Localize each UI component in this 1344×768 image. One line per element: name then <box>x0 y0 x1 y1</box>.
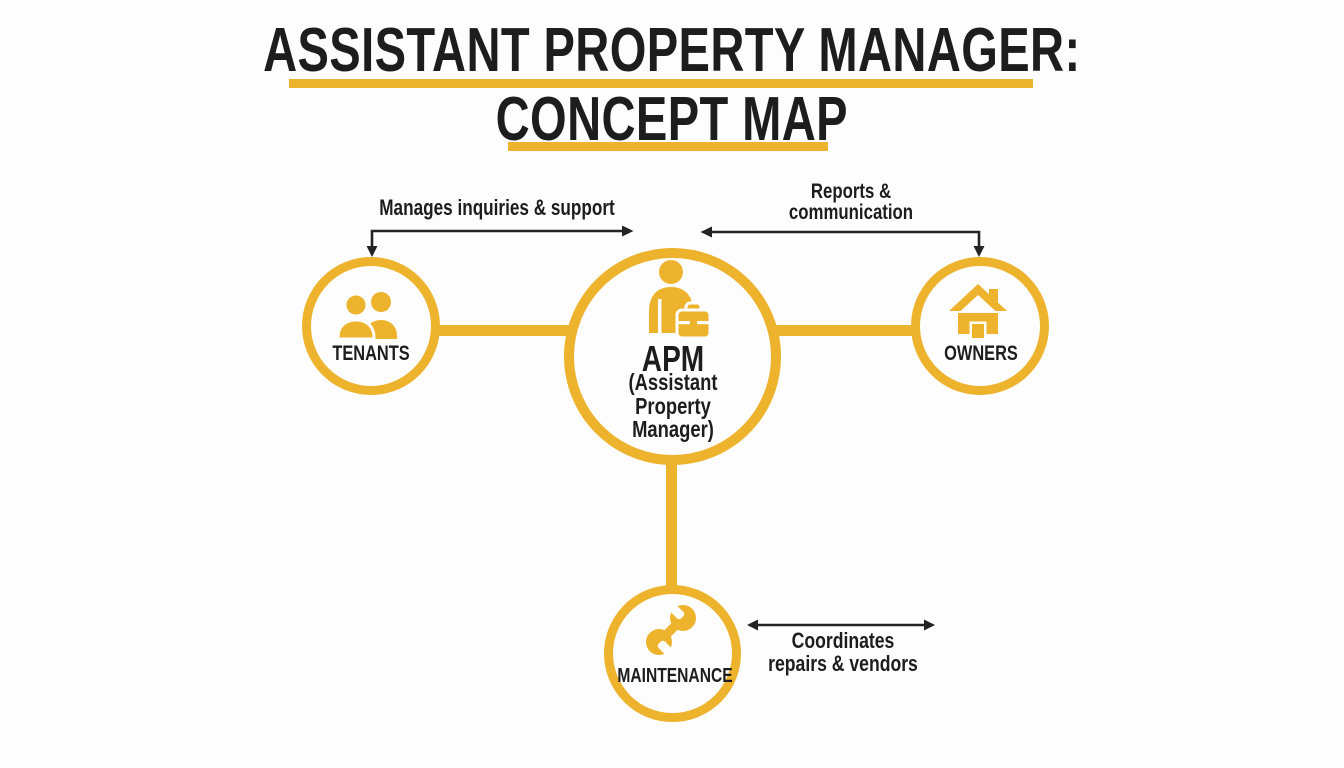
apm-sublabel-line: Manager) <box>632 418 714 442</box>
node-label-maintenance: MAINTENANCE <box>617 666 732 688</box>
connector-maintenance-apm <box>666 445 677 600</box>
arrow-apm-owners <box>701 227 985 258</box>
edge-label-line: Coordinates <box>792 629 895 652</box>
concept-map-canvas: ASSISTANT PROPERTY MANAGER: CONCEPT MAP <box>0 0 1344 768</box>
arrow-tenants-apm <box>367 226 634 258</box>
edge-label-reports-communication: Reports & communication <box>789 181 913 223</box>
wrench-icon <box>637 596 705 664</box>
page-title-line-1: ASSISTANT PROPERTY MANAGER: <box>0 20 1344 82</box>
node-label-tenants: TENANTS <box>332 343 409 366</box>
edge-label-line: repairs & vendors <box>768 652 918 675</box>
house-icon <box>949 284 1007 338</box>
connector-owners-apm <box>770 325 920 336</box>
edge-label-line: Reports & <box>811 181 891 202</box>
apm-sublabel-line: Property <box>635 395 711 419</box>
edge-label-manages-inquiries: Manages inquiries & support <box>379 196 615 220</box>
title-underline <box>508 142 828 151</box>
node-label-owners: OWNERS <box>944 343 1018 366</box>
edge-label-coordinates-repairs: Coordinates repairs & vendors <box>768 629 918 675</box>
edge-label-line: communication <box>789 202 913 223</box>
apm-sublabel-line: (Assistant <box>629 371 718 395</box>
person-briefcase-icon <box>641 259 711 341</box>
connector-tenants-apm <box>430 325 575 336</box>
two-people-icon <box>336 291 402 339</box>
node-sublabel-apm: (Assistant Property Manager) <box>629 371 718 442</box>
